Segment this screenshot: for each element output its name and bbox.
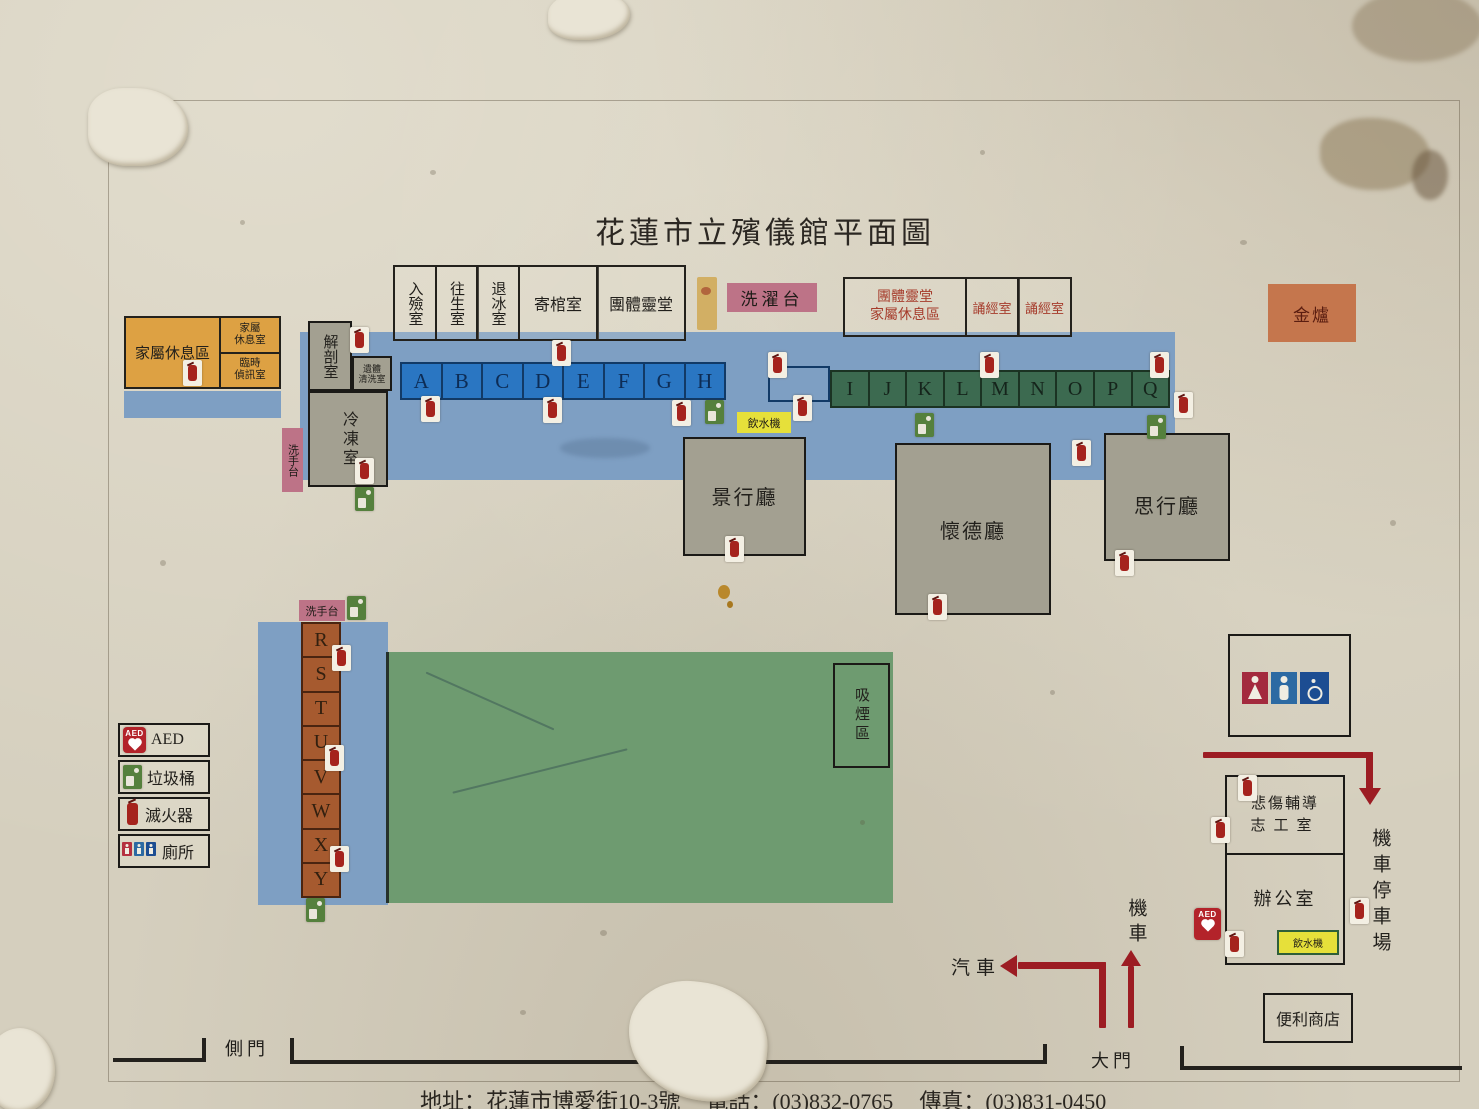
wall-stain <box>727 601 733 608</box>
fire-extinguisher-icon <box>980 352 999 378</box>
fire-extinguisher-icon <box>325 745 344 771</box>
trash-bin-icon <box>705 400 724 424</box>
office-label: 辦公室 <box>1227 885 1343 911</box>
family-rest-area: 家屬休息區 <box>126 318 219 387</box>
chanting-room-2: 誦經室 <box>1017 277 1072 337</box>
body-wash-room: 遺體清洗室 <box>352 356 392 391</box>
fire-extinguisher-icon <box>183 360 202 386</box>
fire-extinguisher-icon <box>1238 775 1257 801</box>
legend-aed-label: AED <box>151 731 184 749</box>
water-dispenser-label-2: 飲水機 <box>1277 930 1339 955</box>
cell-H: H <box>684 362 727 400</box>
fire-extinguisher-icon <box>332 645 351 671</box>
group-rest-area-label: 團體靈堂 家屬休息區 <box>870 289 940 325</box>
trash-bin-icon <box>123 765 142 789</box>
trash-bin-icon <box>1147 415 1166 439</box>
crypt-cells-a-h: ABCDEFGH <box>400 362 726 400</box>
cell-B: B <box>441 362 484 400</box>
fax-text: 傳真：(03)831-0450 <box>919 1084 1106 1109</box>
fire-extinguisher-icon <box>330 846 349 872</box>
room-group-hall: 團體靈堂 <box>596 265 686 341</box>
moto-arrow-shaft <box>1128 966 1134 1028</box>
cell-T: T <box>301 691 341 727</box>
smoking-area: 吸煙區 <box>833 663 890 768</box>
freezer-room: 冷凍室 <box>308 391 388 487</box>
car-label: 汽車 <box>948 953 1004 979</box>
room-mortuary: 往生室 <box>435 265 479 341</box>
cell-O: O <box>1055 370 1095 408</box>
hand-wash-label-1: 洗手台 <box>282 428 303 492</box>
top-room-row: 入殮室 往生室 退冰室 寄棺室 團體靈堂 <box>393 265 691 341</box>
room-thaw: 退冰室 <box>476 265 520 341</box>
wall-stain <box>718 585 730 599</box>
cell-E: E <box>562 362 605 400</box>
incense-burner: 金爐 <box>1268 284 1356 342</box>
boundary-wall <box>1043 1044 1047 1064</box>
wheelchair-icon <box>1300 672 1329 704</box>
legend-row-aed: AED AED <box>118 723 210 757</box>
moto-label: 機車 <box>1122 893 1150 953</box>
room-encoffin: 入殮室 <box>393 265 437 341</box>
footer-contact-line: 地址：花蓮市博愛街10-3號 電話：(03)832-0765 傳真：(03)83… <box>420 1084 1140 1109</box>
moto-arrowhead-up <box>1121 950 1141 966</box>
temp-interrogation-room: 臨時偵訊室 <box>221 354 279 388</box>
cell-A: A <box>400 362 443 400</box>
cell-I: I <box>830 370 870 408</box>
fire-extinguisher-icon <box>1072 440 1091 466</box>
car-arrowhead-left <box>1000 955 1017 977</box>
cell-P: P <box>1093 370 1133 408</box>
hall-jingxing: 景行廳 <box>683 437 806 556</box>
female-icon <box>1242 672 1268 704</box>
legend-row-trash: 垃圾桶 <box>118 760 210 794</box>
fire-extinguisher-icon <box>552 340 571 366</box>
fire-extinguisher-icon <box>350 327 369 353</box>
trash-bin-icon <box>915 413 934 437</box>
fire-extinguisher-icon <box>543 397 562 423</box>
room-coffin-storage: 寄棺室 <box>518 265 599 341</box>
female-icon <box>122 842 132 856</box>
right-top-room-row: 團體靈堂 家屬休息區 誦經室 誦經室 <box>843 277 1075 337</box>
address-text: 地址：花蓮市博愛街10-3號 <box>420 1084 680 1109</box>
cell-J: J <box>868 370 908 408</box>
fire-extinguisher-icon <box>1150 352 1169 378</box>
car-arrow-horizontal <box>1018 962 1106 969</box>
hall-huaide: 懷德廳 <box>895 443 1051 615</box>
fire-extinguisher-icon <box>725 536 744 562</box>
corridor-left-stub <box>124 391 281 418</box>
cell-N: N <box>1018 370 1058 408</box>
legend-row-toilet: 廁所 <box>118 834 210 868</box>
toilet-block <box>1228 634 1351 737</box>
family-rest-block: 家屬休息區 家屬休息室 臨時偵訊室 <box>124 316 281 389</box>
plaster-patch <box>0 1028 55 1109</box>
main-gate-label: 大門 <box>1088 1048 1138 1072</box>
plaster-patch <box>548 0 630 40</box>
legend-extinguisher-label: 滅火器 <box>145 802 193 826</box>
family-rest-room: 家屬休息室 <box>221 318 279 354</box>
fire-extinguisher-icon <box>928 594 947 620</box>
legend-trash-label: 垃圾桶 <box>147 765 195 789</box>
fire-extinguisher-icon <box>355 458 374 484</box>
moto-route-arrowhead-down <box>1359 788 1381 805</box>
cell-L: L <box>943 370 983 408</box>
crypt-cells-i-q: IJKLMNOPQ <box>830 370 1170 408</box>
wash-station-label: 洗濯台 <box>727 283 817 312</box>
cell-W: W <box>301 793 341 829</box>
chanting-room-1: 誦經室 <box>965 277 1020 337</box>
fire-extinguisher-icon <box>1115 550 1134 576</box>
fire-extinguisher-icon <box>1350 898 1369 924</box>
trash-bin-icon <box>306 898 325 922</box>
cell-C: C <box>481 362 524 400</box>
hall-sixing: 思行廳 <box>1104 433 1230 561</box>
legend-row-extinguisher: 滅火器 <box>118 797 210 831</box>
convenience-store: 便利商店 <box>1263 993 1353 1043</box>
small-label-sticker <box>697 277 717 330</box>
fire-extinguisher-icon <box>1225 931 1244 957</box>
boundary-wall <box>202 1038 206 1062</box>
funeral-home-floorplan-sign: 花蓮市立殯儀館平面圖 入殮室 往生室 退冰室 寄棺室 團體靈堂 洗濯台 團體靈堂… <box>0 0 1479 1109</box>
male-icon <box>1271 672 1297 704</box>
trash-bin-icon <box>355 487 374 511</box>
legend-toilet-label: 廁所 <box>162 839 194 863</box>
cell-D: D <box>522 362 565 400</box>
cell-G: G <box>643 362 686 400</box>
cell-K: K <box>905 370 945 408</box>
boundary-wall <box>1180 1066 1462 1070</box>
fire-extinguisher-icon <box>793 395 812 421</box>
boundary-wall <box>113 1058 205 1062</box>
hand-wash-label-2: 洗手台 <box>299 600 345 621</box>
autopsy-room: 解剖室 <box>308 321 352 391</box>
wall-stain <box>1412 150 1448 200</box>
fire-extinguisher-icon <box>421 396 440 422</box>
cell-F: F <box>603 362 646 400</box>
moto-route-arrow-horizontal <box>1203 752 1373 758</box>
fire-extinguisher-icon <box>1211 817 1230 843</box>
fire-extinguisher-icon <box>672 400 691 426</box>
aed-icon: AED <box>1194 908 1221 940</box>
fire-extinguisher-icon <box>127 803 138 825</box>
moto-parking-label: 機車停車場 <box>1366 815 1394 970</box>
legend: AED AED 垃圾桶 滅火器 廁所 <box>118 723 210 868</box>
side-gate-label: 側門 <box>222 1036 272 1060</box>
trash-bin-icon <box>347 596 366 620</box>
moto-route-arrow-vertical <box>1366 752 1373 790</box>
aed-icon: AED <box>123 727 146 753</box>
water-dispenser-label-1: 飲水機 <box>737 412 791 433</box>
wall-stain <box>1352 0 1479 62</box>
plaster-patch <box>88 88 188 166</box>
car-arrow-vertical <box>1099 962 1106 1028</box>
page-title: 花蓮市立殯儀館平面圖 <box>590 205 940 255</box>
male-icon <box>134 842 144 856</box>
fire-extinguisher-icon <box>1174 392 1193 418</box>
fire-extinguisher-icon <box>768 352 787 378</box>
wheelchair-icon <box>146 842 156 856</box>
